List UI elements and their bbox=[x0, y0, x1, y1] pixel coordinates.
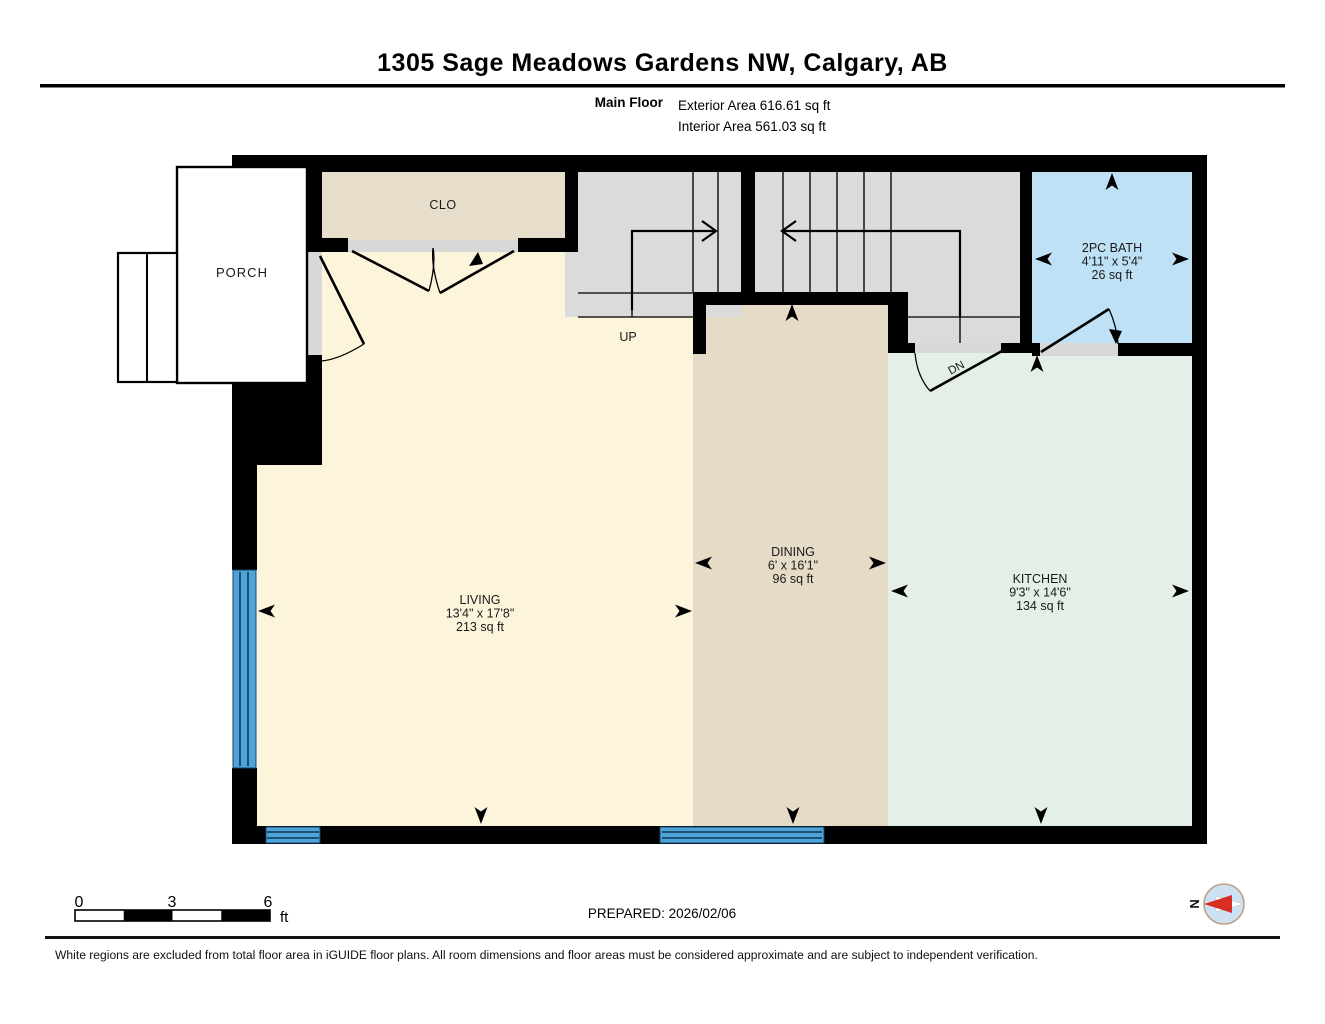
porch-label: PORCH bbox=[216, 265, 268, 280]
living-dims: 13'4" x 17'8" bbox=[446, 607, 515, 621]
scale-bar: 0 3 6 ft bbox=[75, 894, 290, 926]
bath-area: 26 sq ft bbox=[1092, 268, 1134, 282]
floorplan-page: 1305 Sage Meadows Gardens NW, Calgary, A… bbox=[0, 0, 1325, 1024]
bath-name: 2PC BATH bbox=[1082, 241, 1142, 255]
porch-structure bbox=[118, 167, 307, 383]
front-door-opening bbox=[307, 252, 322, 355]
dining-name: DINING bbox=[771, 545, 815, 559]
room-fills bbox=[257, 172, 1192, 826]
scale-bar-segment bbox=[124, 910, 173, 921]
living-name: LIVING bbox=[460, 593, 501, 607]
compass-north-label: N bbox=[1187, 899, 1202, 908]
closet-label: CLO bbox=[429, 198, 456, 212]
kitchen-area: 134 sq ft bbox=[1016, 599, 1064, 613]
window-bottom-large bbox=[660, 827, 824, 843]
dining-dims: 6' x 16'1" bbox=[768, 559, 818, 573]
kitchen-dims: 9'3" x 14'6" bbox=[1009, 586, 1071, 600]
scale-tick-3: 3 bbox=[168, 894, 177, 911]
disclaimer-text: White regions are excluded from total fl… bbox=[55, 948, 1038, 962]
floorplan-drawing: PORCH CLO UP DN LIVING 13'4" x 17'8" 213… bbox=[0, 0, 1325, 1024]
up-label: UP bbox=[619, 330, 636, 344]
scale-unit: ft bbox=[280, 909, 289, 926]
prepared-date: PREPARED: 2026/02/06 bbox=[588, 906, 736, 921]
living-area: 213 sq ft bbox=[456, 620, 504, 634]
dining-area: 96 sq ft bbox=[773, 572, 815, 586]
kitchen-name: KITCHEN bbox=[1013, 572, 1068, 586]
header-rule bbox=[40, 84, 1285, 88]
scale-tick-0: 0 bbox=[75, 894, 84, 911]
window-left bbox=[233, 570, 256, 768]
compass: N bbox=[1187, 884, 1244, 924]
scale-bar-segment bbox=[221, 910, 270, 921]
footer-rule bbox=[45, 936, 1280, 939]
window-bottom-small bbox=[266, 827, 320, 843]
scale-tick-6: 6 bbox=[264, 894, 273, 911]
bath-dims: 4'11" x 5'4" bbox=[1082, 255, 1143, 269]
basement-door-opening bbox=[915, 343, 1001, 353]
